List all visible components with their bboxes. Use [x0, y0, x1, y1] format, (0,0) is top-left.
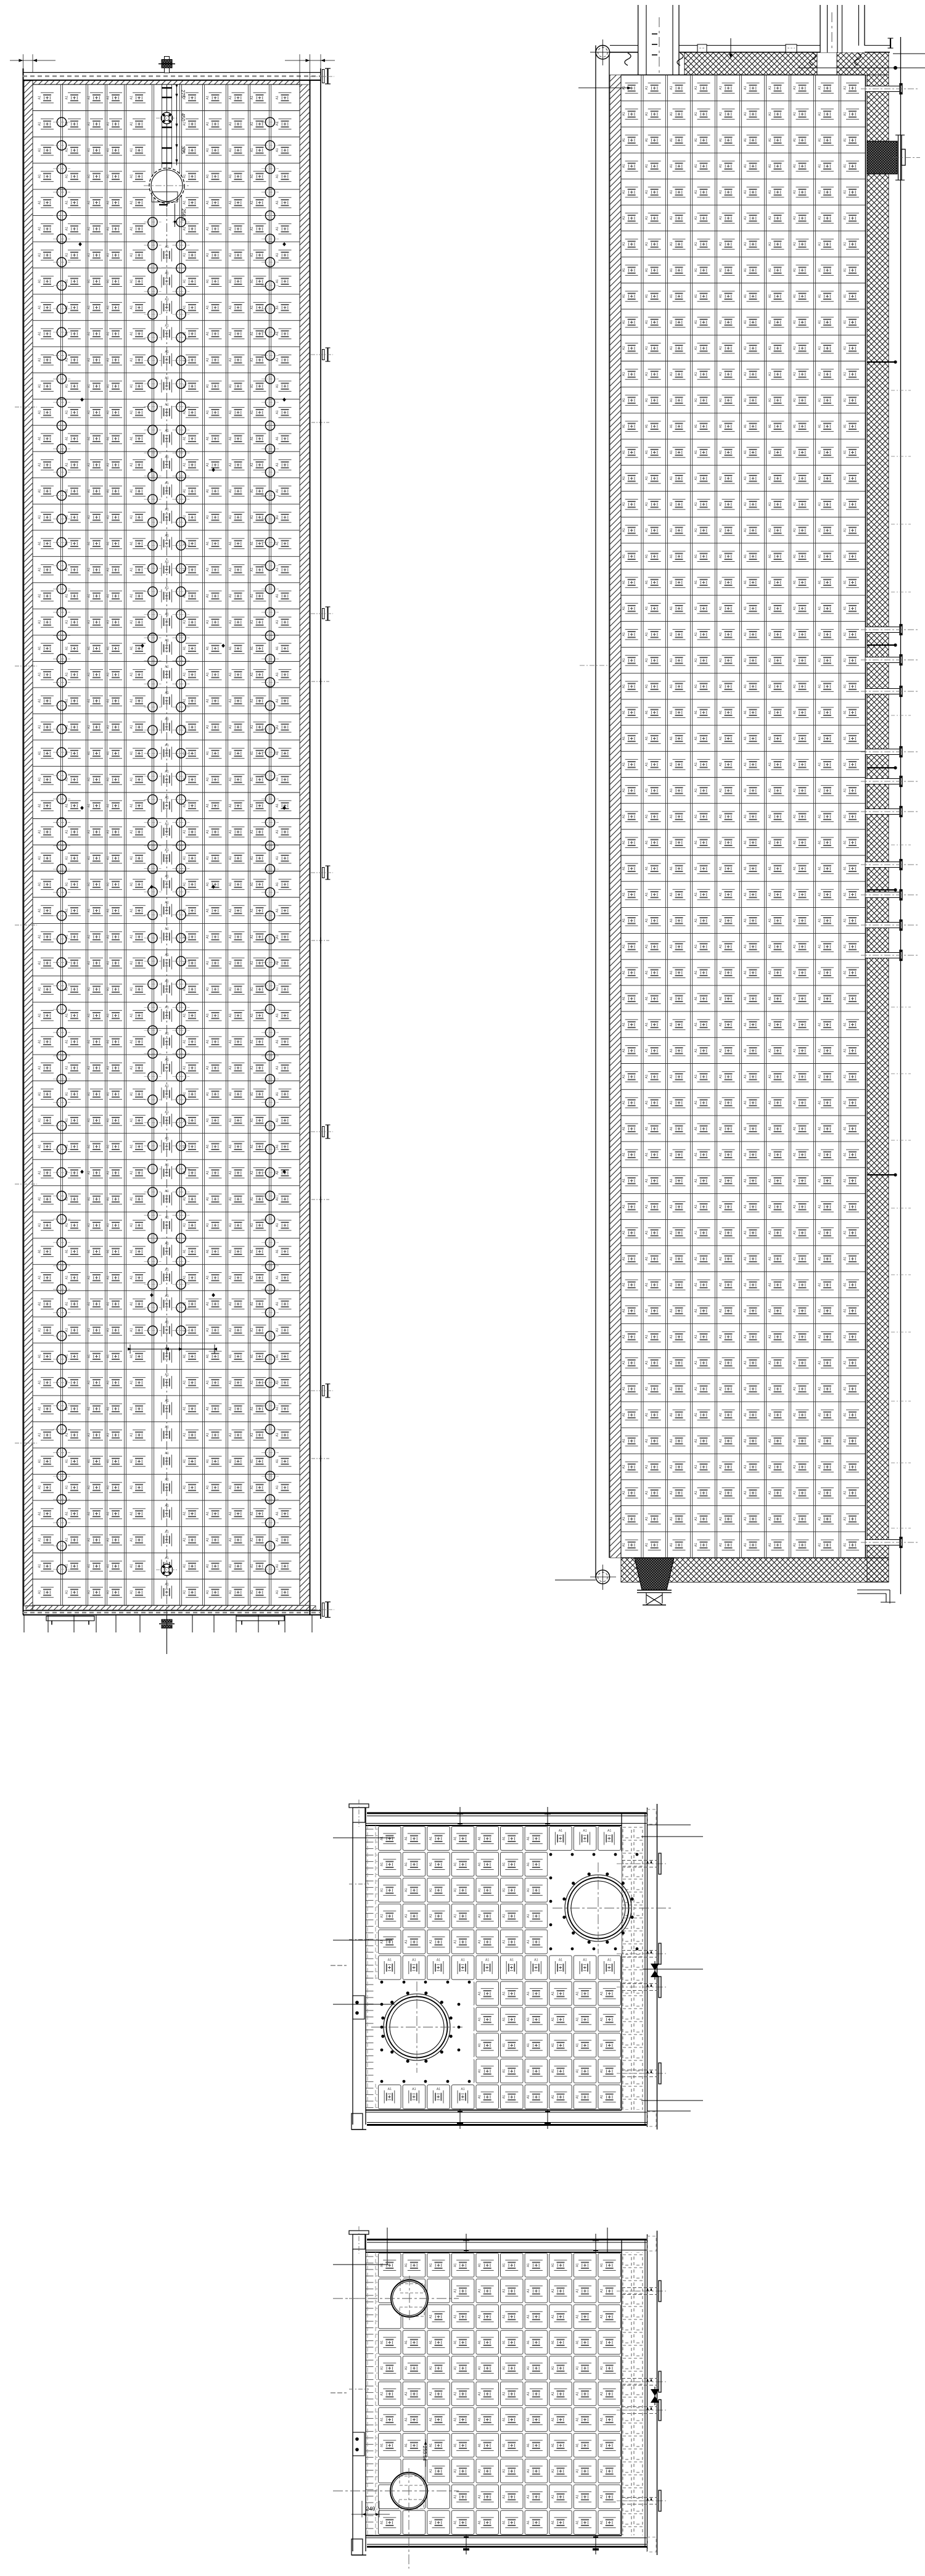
- svg-text:253.54: 253.54: [422, 2446, 427, 2461]
- svg-text:256.3: 256.3: [181, 208, 186, 221]
- svg-text:275: 275: [180, 89, 186, 98]
- svg-text:450: 450: [180, 113, 186, 121]
- svg-text:305: 305: [180, 146, 186, 154]
- svg-text:249: 249: [366, 2506, 375, 2512]
